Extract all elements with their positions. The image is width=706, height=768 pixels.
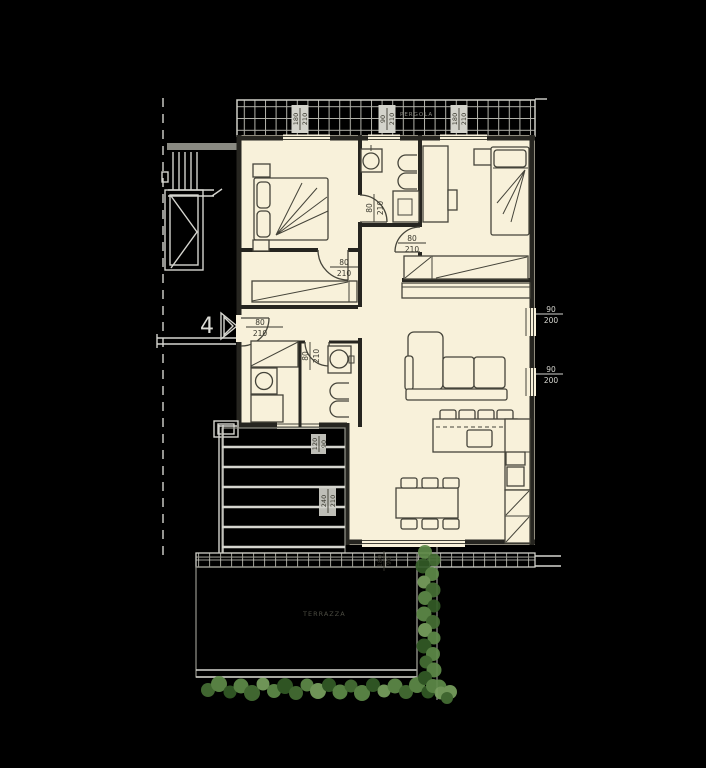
dim-label-window-right-2: 90 200 (536, 365, 563, 385)
kitchen-counter (505, 419, 530, 490)
svg-text:180: 180 (451, 113, 459, 125)
elevator-symbol (171, 196, 197, 268)
svg-text:210: 210 (301, 113, 309, 125)
floor-plan-canvas: 4 PERGOLA 180 210 90 210 180 (0, 0, 706, 768)
shower (393, 191, 419, 222)
svg-text:210: 210 (312, 349, 321, 364)
window-bedroom1 (283, 135, 330, 142)
svg-text:80: 80 (365, 203, 374, 213)
svg-text:120: 120 (311, 438, 319, 450)
double-bed (254, 178, 328, 240)
sofa-seat (443, 357, 474, 388)
sideboard (402, 283, 530, 298)
svg-text:90: 90 (546, 365, 556, 374)
svg-text:200: 200 (544, 376, 559, 385)
svg-text:240: 240 (320, 495, 328, 507)
dim-label-hall-window: 120 90 (311, 434, 328, 454)
dim-label-window-top-1: 180 210 (292, 105, 310, 133)
dining-chair (422, 478, 438, 488)
unit-number: 4 (200, 314, 214, 339)
terrace-grid-lower (196, 567, 417, 677)
dining-chair (443, 478, 459, 488)
svg-text:90: 90 (320, 440, 328, 448)
svg-text:90: 90 (385, 557, 393, 565)
pergola-word-label: PERGOLA (400, 112, 433, 118)
window-labels-right: 90 200 90 200 (536, 305, 563, 385)
svg-text:180: 180 (376, 555, 384, 567)
dim-label-terrace-door: 240 210 (319, 486, 337, 516)
apartment: 80 210 80 210 80 210 80 210 80 (236, 135, 536, 548)
landing-slab (167, 143, 238, 150)
svg-text:210: 210 (460, 113, 468, 125)
wardrobe (252, 281, 357, 302)
svg-text:90: 90 (379, 115, 387, 123)
stairwell-common-area (157, 98, 238, 562)
sofa-armrest (405, 356, 413, 390)
nightstand (253, 240, 269, 251)
svg-text:80: 80 (301, 351, 310, 361)
nightstand (474, 149, 493, 165)
sliding-door-terrace (362, 538, 465, 547)
dining-table (396, 488, 458, 518)
dining-chair (422, 519, 438, 529)
floor-plan-page: 4 PERGOLA 180 210 90 210 180 (0, 0, 706, 768)
svg-text:210: 210 (388, 113, 396, 125)
window-bath1 (368, 135, 400, 142)
dining-chair (443, 519, 459, 529)
svg-text:80: 80 (339, 258, 349, 267)
hedge-plants (201, 545, 457, 704)
svg-text:210: 210 (329, 495, 337, 507)
dim-label-window-top-3: 180 210 (451, 105, 469, 133)
elevator (165, 190, 203, 270)
wardrobe (404, 256, 528, 279)
svg-text:80: 80 (407, 234, 417, 243)
sofa-seat (474, 357, 505, 388)
svg-text:200: 200 (544, 316, 559, 325)
nightstand (253, 164, 270, 177)
dining-chair (401, 478, 417, 488)
terrace-word-label: TERRAZZA (302, 610, 346, 618)
svg-text:210: 210 (337, 269, 352, 278)
window-bedroom2 (440, 135, 487, 142)
svg-text:180: 180 (292, 113, 300, 125)
svg-text:210: 210 (253, 329, 268, 338)
single-bed (491, 147, 529, 235)
svg-text:80: 80 (255, 318, 265, 327)
svg-text:210: 210 (405, 245, 420, 254)
utility-counter (251, 395, 283, 422)
unit-marker: 4 (200, 313, 242, 339)
dining-chair (401, 519, 417, 529)
desk-chair (448, 190, 457, 210)
dim-label-window-right-1: 90 200 (536, 305, 563, 325)
sofa-base (406, 389, 507, 400)
svg-text:210: 210 (376, 201, 385, 216)
svg-text:90: 90 (546, 305, 556, 314)
dim-label-window-top-2: 90 210 (379, 105, 397, 133)
desk (423, 146, 448, 222)
